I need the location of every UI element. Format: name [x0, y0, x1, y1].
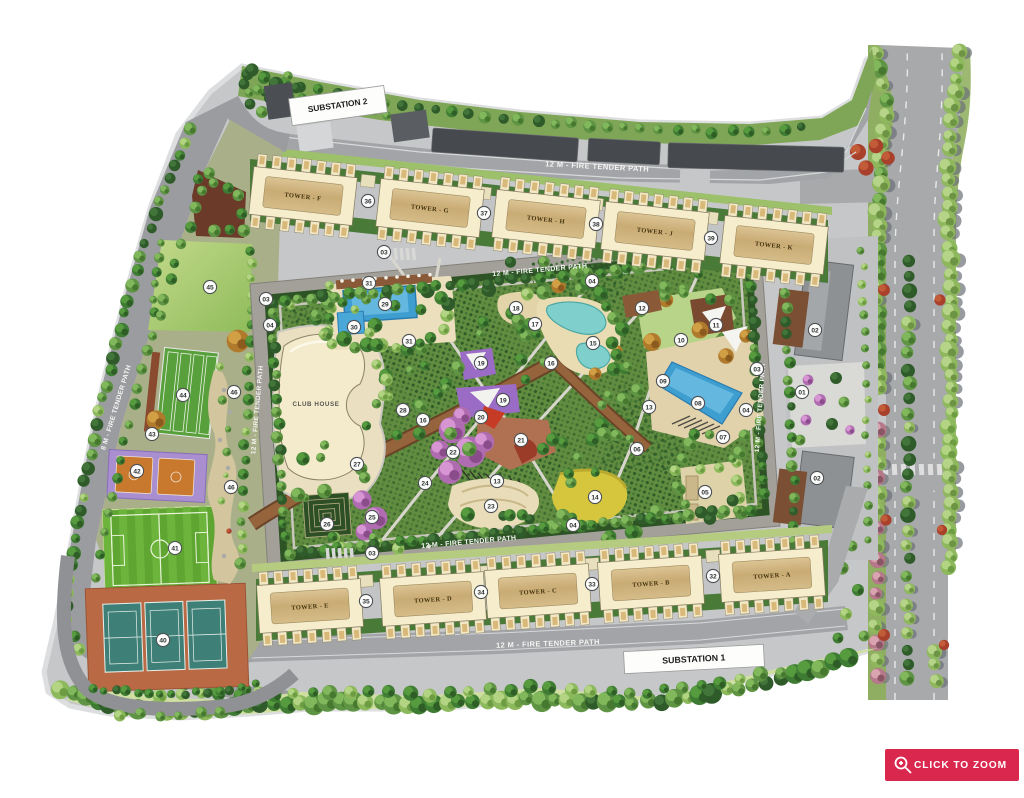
svg-text:45: 45 [206, 284, 214, 291]
svg-text:08: 08 [694, 400, 702, 407]
svg-text:13: 13 [645, 404, 653, 411]
svg-text:02: 02 [811, 327, 819, 334]
svg-text:02: 02 [813, 475, 821, 482]
svg-text:19: 19 [477, 360, 485, 367]
svg-text:04: 04 [266, 322, 274, 329]
svg-text:44: 44 [179, 392, 187, 399]
svg-text:04: 04 [742, 407, 750, 414]
svg-text:09: 09 [659, 378, 667, 385]
svg-text:16: 16 [419, 417, 427, 424]
svg-text:30: 30 [350, 324, 358, 331]
svg-text:22: 22 [449, 449, 457, 456]
svg-text:11: 11 [713, 322, 720, 329]
svg-text:33: 33 [588, 581, 596, 588]
svg-text:26: 26 [323, 521, 331, 528]
svg-text:35: 35 [362, 598, 370, 605]
svg-text:32: 32 [709, 573, 717, 580]
svg-text:46: 46 [227, 484, 235, 491]
svg-text:31: 31 [365, 280, 373, 287]
svg-text:01: 01 [798, 389, 806, 396]
svg-text:38: 38 [592, 221, 600, 228]
svg-text:27: 27 [353, 461, 361, 468]
svg-text:39: 39 [707, 235, 715, 242]
svg-text:19: 19 [499, 397, 507, 404]
svg-text:31: 31 [405, 338, 413, 345]
svg-text:18: 18 [512, 305, 520, 312]
svg-text:03: 03 [753, 366, 761, 373]
svg-text:29: 29 [381, 301, 389, 308]
svg-text:23: 23 [487, 503, 495, 510]
svg-text:43: 43 [148, 431, 156, 438]
svg-text:36: 36 [364, 198, 372, 205]
svg-text:05: 05 [701, 489, 709, 496]
svg-text:17: 17 [531, 321, 539, 328]
svg-text:28: 28 [399, 407, 407, 414]
svg-text:41: 41 [171, 545, 179, 552]
svg-text:CLUB HOUSE: CLUB HOUSE [293, 401, 340, 408]
svg-text:03: 03 [368, 550, 376, 557]
svg-text:04: 04 [588, 278, 596, 285]
svg-text:42: 42 [133, 468, 141, 475]
svg-text:21: 21 [517, 437, 525, 444]
svg-text:10: 10 [677, 337, 685, 344]
svg-text:12: 12 [638, 305, 646, 312]
svg-text:24: 24 [421, 480, 429, 487]
svg-text:46: 46 [230, 389, 238, 396]
svg-text:03: 03 [262, 296, 270, 303]
svg-text:37: 37 [480, 210, 488, 217]
svg-text:04: 04 [569, 522, 577, 529]
svg-text:07: 07 [719, 434, 727, 441]
svg-text:20: 20 [477, 414, 485, 421]
svg-text:CLICK TO ZOOM: CLICK TO ZOOM [914, 760, 1007, 771]
svg-text:13: 13 [493, 478, 501, 485]
svg-text:40: 40 [159, 637, 167, 644]
svg-text:06: 06 [633, 446, 641, 453]
svg-text:15: 15 [589, 340, 597, 347]
svg-text:34: 34 [477, 589, 485, 596]
svg-text:03: 03 [380, 249, 388, 256]
svg-text:25: 25 [368, 514, 376, 521]
svg-text:16: 16 [547, 360, 555, 367]
svg-text:14: 14 [591, 494, 599, 501]
